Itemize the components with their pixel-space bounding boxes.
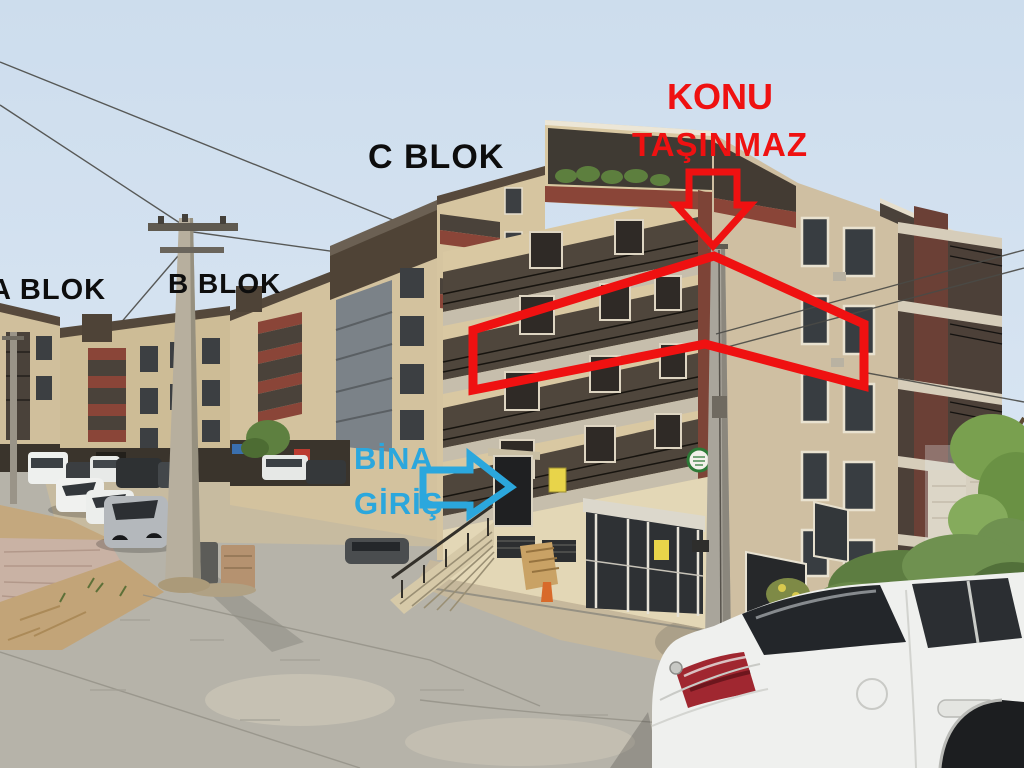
scene-art — [0, 0, 1024, 768]
building-entrance-label: BİNA GİRİŞ — [354, 443, 443, 520]
building-entrance-line1: BİNA — [354, 441, 434, 476]
subject-property-line2: TAŞINMAZ — [596, 128, 844, 163]
subject-property-label: KONU TAŞINMAZ — [596, 78, 844, 162]
apartment-street-photo: KONU TAŞINMAZ C BLOK B BLOK A BLOK BİNA … — [0, 0, 1024, 768]
block-a-label: A BLOK — [0, 275, 106, 305]
subject-property-line1: KONU — [667, 76, 773, 117]
block-c-label: C BLOK — [368, 140, 504, 176]
building-entrance-line2: GİRİŞ — [354, 488, 443, 521]
block-b-label: B BLOK — [168, 269, 281, 298]
